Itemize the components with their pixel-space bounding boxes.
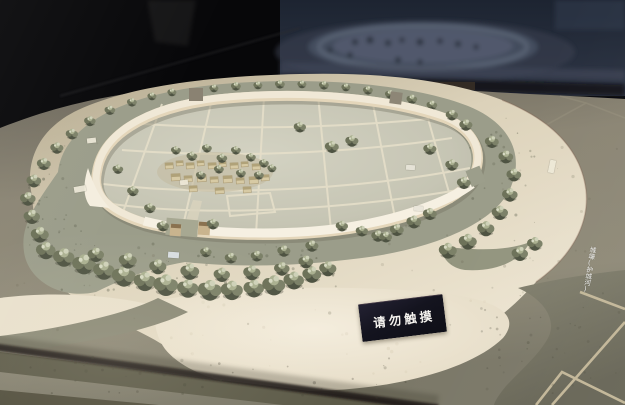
house xyxy=(176,161,183,166)
house xyxy=(230,163,238,169)
house xyxy=(223,176,232,183)
mini-label-tag xyxy=(168,252,179,259)
diorama-scene xyxy=(0,0,625,405)
mini-label-tag xyxy=(414,206,423,211)
mini-label-tag xyxy=(87,138,96,144)
house xyxy=(197,161,204,166)
house xyxy=(241,162,248,167)
house xyxy=(252,164,260,170)
house xyxy=(215,188,224,194)
house xyxy=(186,163,194,169)
house xyxy=(189,186,197,192)
house xyxy=(243,187,251,193)
house xyxy=(165,163,173,169)
house xyxy=(236,178,244,184)
museum-display-photo: 请勿触摸 城壕(护城河) xyxy=(0,0,625,405)
mini-label-tag xyxy=(406,165,415,170)
mini-label-tag xyxy=(180,180,188,186)
house xyxy=(210,177,218,183)
